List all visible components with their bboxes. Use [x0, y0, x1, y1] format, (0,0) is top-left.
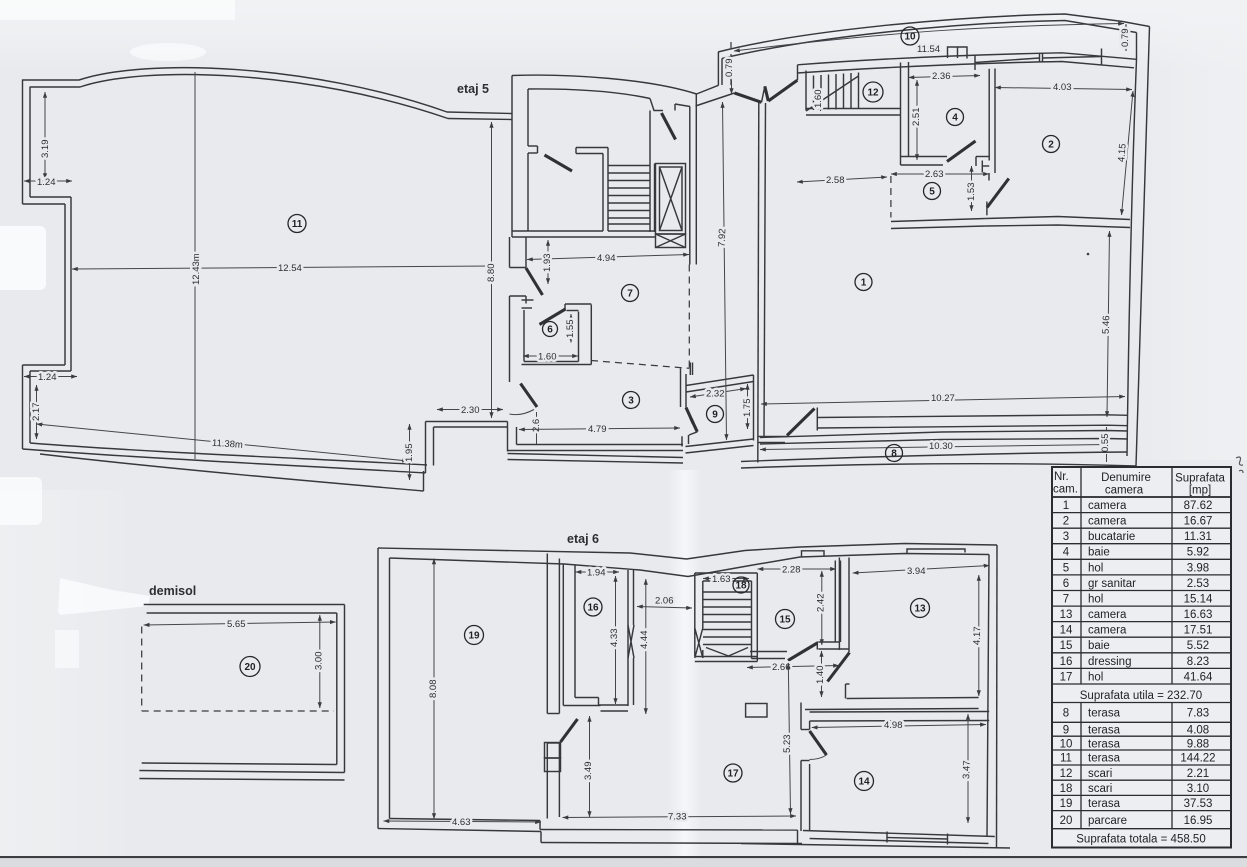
svg-text:87.62: 87.62: [1184, 500, 1213, 512]
svg-text:hol: hol: [1088, 671, 1103, 683]
svg-text:4.44: 4.44: [639, 631, 650, 650]
svg-text:14: 14: [858, 777, 870, 788]
svg-text:15: 15: [1060, 640, 1073, 652]
svg-text:4.08: 4.08: [1187, 725, 1209, 737]
svg-text:3: 3: [628, 396, 634, 407]
svg-text:4.98: 4.98: [884, 720, 903, 731]
svg-text:4.63: 4.63: [452, 817, 471, 828]
svg-text:4: 4: [1063, 547, 1070, 559]
svg-text:parcare: parcare: [1088, 815, 1127, 827]
svg-text:3.00: 3.00: [314, 652, 325, 671]
svg-text:5.23: 5.23: [782, 734, 793, 753]
svg-text:scari: scari: [1088, 783, 1112, 795]
svg-text:Denumire: Denumire: [1101, 472, 1151, 484]
svg-text:1.53: 1.53: [966, 183, 977, 202]
svg-text:7: 7: [1063, 594, 1069, 606]
svg-text:5.92: 5.92: [1187, 547, 1209, 559]
svg-text:1.60: 1.60: [538, 352, 557, 363]
svg-text:10: 10: [1060, 738, 1073, 750]
svg-text:10.30: 10.30: [929, 441, 953, 452]
svg-text:12: 12: [867, 88, 879, 99]
svg-text:1.55: 1.55: [565, 320, 576, 339]
svg-text:13: 13: [914, 604, 926, 615]
svg-text:8.80: 8.80: [486, 264, 497, 283]
svg-text:7.83: 7.83: [1187, 708, 1209, 720]
svg-text:17: 17: [727, 769, 739, 780]
svg-text:camera: camera: [1088, 625, 1127, 637]
svg-text:12.43m: 12.43m: [191, 253, 202, 285]
svg-text:18: 18: [735, 581, 747, 592]
svg-text:16.95: 16.95: [1184, 815, 1213, 827]
svg-text:10.27: 10.27: [931, 393, 955, 404]
svg-text:scari: scari: [1088, 768, 1112, 780]
svg-text:4.15: 4.15: [1116, 143, 1129, 162]
svg-text:1.24: 1.24: [37, 177, 56, 188]
svg-text:2.36: 2.36: [932, 71, 951, 82]
svg-text:etaj 6: etaj 6: [567, 532, 599, 546]
svg-text:1.75: 1.75: [742, 399, 753, 418]
svg-text:terasa: terasa: [1088, 753, 1121, 765]
svg-text:5.52: 5.52: [1187, 640, 1209, 652]
svg-text:hol: hol: [1088, 594, 1103, 606]
svg-text:6: 6: [1063, 578, 1069, 590]
svg-text:11.54: 11.54: [917, 44, 940, 55]
svg-text:3.47: 3.47: [961, 760, 973, 779]
svg-text:demisol: demisol: [149, 584, 196, 598]
svg-text:4.94: 4.94: [597, 253, 616, 264]
svg-text:1.63: 1.63: [712, 574, 731, 585]
svg-text:3: 3: [1063, 531, 1069, 543]
svg-text:37.53: 37.53: [1184, 798, 1213, 810]
svg-text:5.46: 5.46: [1101, 315, 1113, 334]
svg-text:144.22: 144.22: [1180, 753, 1215, 765]
svg-text:10: 10: [904, 32, 916, 43]
svg-text:3.98: 3.98: [1187, 562, 1209, 574]
svg-text:2.58: 2.58: [826, 175, 845, 186]
svg-text:15: 15: [779, 615, 791, 626]
svg-text:baie: baie: [1088, 547, 1110, 559]
svg-text:2.06: 2.06: [655, 596, 674, 607]
svg-text:9.88: 9.88: [1187, 738, 1209, 750]
svg-text:1.60: 1.60: [813, 90, 824, 109]
svg-text:baie: baie: [1088, 640, 1110, 652]
svg-text:8: 8: [891, 449, 897, 460]
svg-text:0.55: 0.55: [1100, 434, 1111, 453]
svg-text:0.79: 0.79: [1120, 29, 1131, 48]
svg-text:2.32: 2.32: [706, 389, 725, 400]
svg-text:3.94: 3.94: [907, 566, 926, 577]
svg-text:2.30: 2.30: [461, 405, 480, 416]
svg-text:terasa: terasa: [1088, 738, 1121, 750]
svg-text:41.64: 41.64: [1184, 671, 1213, 683]
svg-text:camera: camera: [1088, 500, 1127, 512]
svg-text:2.21: 2.21: [1187, 768, 1209, 780]
svg-text:Suprafata: Suprafata: [1175, 473, 1225, 485]
svg-text:2.17: 2.17: [31, 403, 42, 422]
svg-text:dressing: dressing: [1088, 656, 1131, 668]
svg-text:12.54: 12.54: [278, 263, 302, 274]
svg-text:9: 9: [1063, 725, 1069, 737]
svg-text:4.17: 4.17: [972, 626, 984, 645]
svg-text:etaj 5: etaj 5: [457, 82, 489, 96]
svg-text:4.33: 4.33: [609, 629, 620, 648]
svg-text:terasa: terasa: [1088, 708, 1121, 720]
svg-text:3.19: 3.19: [40, 140, 51, 159]
svg-text:8.23: 8.23: [1187, 656, 1209, 668]
svg-text:hol: hol: [1088, 562, 1103, 574]
svg-text:3.49: 3.49: [583, 762, 594, 781]
svg-text:15.14: 15.14: [1184, 594, 1213, 606]
svg-text:12: 12: [1060, 768, 1073, 780]
svg-text:camera: camera: [1105, 485, 1144, 497]
svg-text:11.31: 11.31: [1184, 531, 1212, 543]
svg-text:camera: camera: [1088, 609, 1127, 621]
svg-text:2: 2: [1063, 516, 1069, 528]
svg-text:5.65: 5.65: [227, 619, 246, 630]
svg-text:16: 16: [587, 603, 599, 614]
svg-text:17.51: 17.51: [1184, 625, 1213, 637]
svg-text:bucatarie: bucatarie: [1088, 531, 1135, 543]
svg-text:1.24: 1.24: [38, 372, 57, 383]
svg-text:18: 18: [1060, 783, 1073, 795]
svg-text:2.63: 2.63: [925, 169, 944, 180]
svg-text:16.67: 16.67: [1184, 516, 1213, 528]
svg-text:11: 11: [292, 219, 303, 230]
svg-text:2.53: 2.53: [1187, 578, 1209, 590]
svg-text:3.10: 3.10: [1187, 783, 1209, 795]
svg-text:8: 8: [1063, 708, 1069, 720]
svg-text:5: 5: [1063, 562, 1069, 574]
svg-text:0.79: 0.79: [724, 59, 735, 78]
svg-text:Suprafata utila = 232.70: Suprafata utila = 232.70: [1080, 690, 1202, 702]
svg-text:16.63: 16.63: [1184, 609, 1213, 621]
svg-text:20: 20: [244, 662, 256, 673]
svg-text:2.28: 2.28: [782, 565, 801, 576]
svg-text:9: 9: [712, 410, 718, 421]
svg-text:1.95: 1.95: [404, 444, 415, 463]
svg-text:4: 4: [952, 113, 958, 124]
svg-text:8.08: 8.08: [428, 680, 439, 699]
svg-text:20: 20: [1060, 815, 1073, 827]
svg-text:1: 1: [861, 278, 867, 289]
svg-text:camera: camera: [1088, 516, 1127, 528]
svg-text:[mp]: [mp]: [1189, 485, 1211, 497]
svg-text:17: 17: [1060, 671, 1073, 683]
svg-text:2.51: 2.51: [911, 108, 922, 127]
svg-text:7.33: 7.33: [668, 812, 687, 823]
svg-text:13: 13: [1060, 609, 1073, 621]
svg-text:1.40: 1.40: [815, 666, 826, 685]
svg-text:2.42: 2.42: [816, 594, 827, 613]
svg-text:19: 19: [468, 631, 480, 642]
svg-text:16: 16: [1060, 656, 1073, 668]
svg-text:2.66: 2.66: [772, 662, 791, 673]
svg-text:6: 6: [547, 325, 553, 336]
svg-text:1.93: 1.93: [542, 254, 553, 273]
svg-text:terasa: terasa: [1088, 725, 1121, 737]
svg-text:14: 14: [1060, 625, 1073, 637]
svg-text:5: 5: [929, 187, 935, 198]
svg-text:cam.: cam.: [1053, 484, 1078, 496]
svg-text:2: 2: [1048, 140, 1054, 151]
svg-text:Suprafata totala = 458.50: Suprafata totala = 458.50: [1076, 834, 1205, 846]
svg-text:4.79: 4.79: [588, 424, 607, 435]
svg-text:4.03: 4.03: [1053, 82, 1072, 93]
svg-text:2.6: 2.6: [531, 419, 542, 432]
svg-text:19: 19: [1060, 798, 1073, 810]
svg-text:7.92: 7.92: [716, 228, 728, 247]
svg-text:11: 11: [1060, 753, 1072, 765]
svg-text:7: 7: [627, 289, 633, 300]
svg-text:terasa: terasa: [1088, 798, 1121, 810]
svg-text:11.38m: 11.38m: [212, 438, 244, 451]
svg-text:1.94: 1.94: [587, 568, 606, 579]
svg-text:1: 1: [1063, 500, 1069, 512]
svg-text:gr sanitar: gr sanitar: [1088, 578, 1136, 590]
svg-text:Nr.: Nr.: [1054, 471, 1069, 483]
